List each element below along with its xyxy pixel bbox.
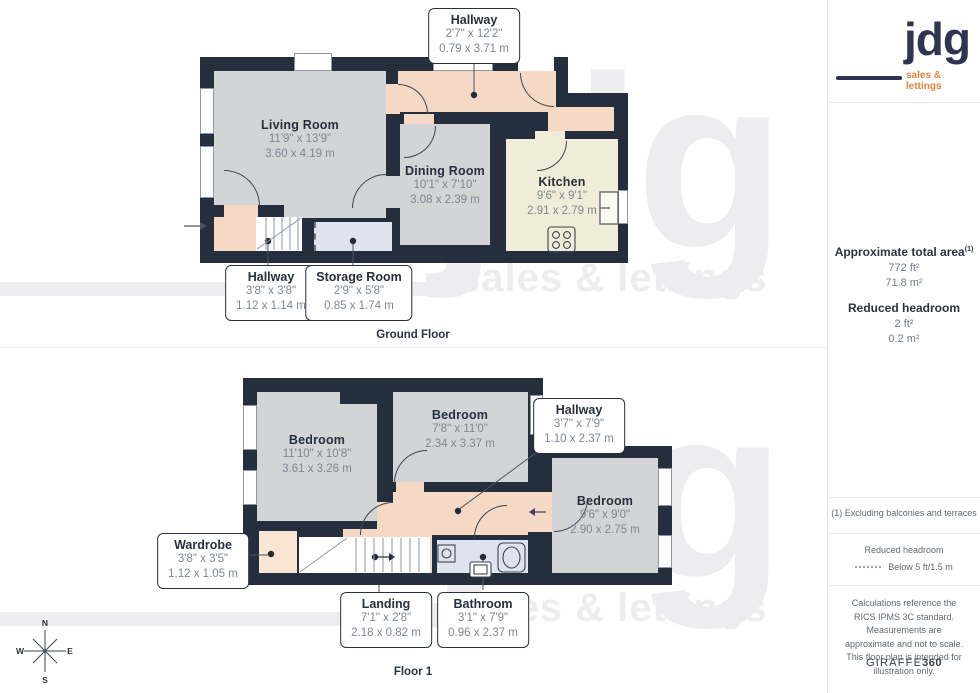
f1-window-bedroom-right-2 (658, 535, 672, 568)
room-name: Hallway (544, 403, 614, 417)
room-dims-ft: 2'7" x 12'2" (439, 27, 509, 42)
gf-door-gap-living-dining (386, 176, 402, 208)
room-dims-ft: 3'1" x 7'9" (448, 611, 518, 626)
f1-wall-notch (340, 392, 377, 404)
f1-callout-wardrobe: Wardrobe 3'8" x 3'5" 1.12 x 1.05 m (157, 533, 249, 589)
info-sidebar: jdg sales & lettings Approximate total a… (827, 0, 980, 693)
legend-value: Below 5 ft/1.5 m (888, 562, 953, 572)
reduced-headroom-title: Reduced headroom (828, 301, 980, 315)
plan-area: jdg sales & lettings jdg sales & letting… (0, 0, 827, 693)
total-area-title: Approximate total area(1) (828, 243, 980, 261)
gf-label-living-room: Living Room 11'9" x 13'9" 3.60 x 4.19 m (261, 118, 339, 162)
compass-s: S (42, 675, 48, 685)
jdg-logo-tagline: sales & lettings (906, 70, 974, 92)
sidebar-divider-3 (828, 533, 980, 534)
compass-e: E (67, 646, 73, 656)
gf-floor-hallway-kitchen-entry (548, 107, 614, 131)
floorplan-page: jdg sales & lettings jdg sales & letting… (0, 0, 980, 693)
giraffe360-number: 360 (922, 657, 942, 669)
f1-window-left-1 (243, 405, 257, 450)
room-name: Bedroom (282, 433, 352, 447)
total-area-m: 71.8 m² (828, 277, 980, 289)
f1-label-bedroom-right: Bedroom 9'6" x 9'0" 2.90 x 2.75 m (570, 494, 640, 538)
room-dims-ft: 7'1" x 2'8" (351, 611, 421, 626)
f1-callout-hallway: Hallway 3'7" x 7'9" 1.10 x 2.37 m (533, 398, 625, 454)
f1-stairs-area (299, 537, 430, 573)
gf-floor-storage-room (314, 222, 392, 251)
f1-floor-bathroom (437, 540, 528, 573)
f1-window-bedroom-right-1 (658, 468, 672, 506)
f1-door-gap-hall-bedroom-right (528, 492, 552, 532)
floor-section-divider (0, 347, 827, 348)
reduced-headroom-ft: 2 ft² (828, 318, 980, 330)
room-name: Wardrobe (168, 538, 238, 552)
giraffe360-brand: GIRAFFE360 (828, 657, 980, 669)
room-dims-ft: 3'7" x 7'9" (544, 417, 614, 432)
gf-window-kitchen-right (618, 190, 628, 224)
sidebar-divider-2 (828, 497, 980, 498)
room-name: Bedroom (425, 408, 495, 422)
room-dims-m: 3.61 x 3.26 m (282, 462, 352, 477)
room-name: Kitchen (527, 175, 597, 189)
room-name: Storage Room (316, 270, 401, 284)
legend-row: Below 5 ft/1.5 m (828, 562, 980, 572)
room-dims-m: 2.91 x 2.79 m (527, 204, 597, 219)
room-dims-ft: 10'1" x 7'10" (405, 178, 485, 193)
f1-label-bedroom-mid: Bedroom 7'8" x 11'0" 2.34 x 3.37 m (425, 408, 495, 452)
room-dims-m: 1.12 x 1.05 m (168, 567, 238, 582)
giraffe360-name: GIRAFFE (866, 657, 922, 669)
room-dims-ft: 7'8" x 11'0" (425, 422, 495, 437)
room-dims-m: 3.08 x 2.39 m (405, 193, 485, 208)
room-dims-m: 2.90 x 2.75 m (570, 523, 640, 538)
room-dims-ft: 9'6" x 9'0" (570, 508, 640, 523)
gf-label-dining-room: Dining Room 10'1" x 7'10" 3.08 x 2.39 m (405, 164, 485, 208)
gf-front-door-gap (518, 57, 554, 71)
compass-w: W (16, 646, 25, 656)
total-area-ft: 772 ft² (828, 262, 980, 274)
room-dims-m: 1.12 x 1.14 m (236, 299, 306, 314)
room-dims-m: 2.18 x 0.82 m (351, 626, 421, 641)
gf-callout-hallway-bottom: Hallway 3'8" x 3'8" 1.12 x 1.14 m (225, 265, 317, 321)
footnote-excluding: (1) Excluding balconies and terraces (828, 508, 980, 518)
total-area-title-text: Approximate total area (835, 245, 965, 259)
room-dims-m: 2.34 x 3.37 m (425, 437, 495, 452)
gf-bay-window-living (294, 53, 332, 71)
total-area-superscript: (1) (965, 246, 974, 253)
gf-door-gap-hall-dining (404, 114, 434, 124)
f1-callout-landing: Landing 7'1" x 2'8" 2.18 x 0.82 m (340, 592, 432, 648)
room-name: Landing (351, 597, 421, 611)
room-name: Dining Room (405, 164, 485, 178)
sidebar-divider-1 (828, 102, 980, 103)
gf-stairs-area (256, 217, 302, 251)
room-dims-ft: 3'8" x 3'5" (168, 552, 238, 567)
f1-window-left-2 (243, 470, 257, 505)
reduced-headroom-dotted-icon (855, 566, 881, 568)
f1-door-gap-bedroom-mid (396, 482, 424, 492)
room-dims-ft: 11'9" x 13'9" (261, 132, 339, 147)
gf-caption: Ground Floor (376, 329, 449, 341)
jdg-logo-text: jdg (904, 12, 970, 66)
jdg-logo: jdg sales & lettings (836, 12, 974, 92)
room-dims-m: 0.85 x 1.74 m (316, 299, 401, 314)
f1-label-bedroom-left: Bedroom 11'10" x 10'8" 3.61 x 3.26 m (282, 433, 352, 477)
gf-window-living-left-2 (200, 146, 214, 198)
legend-title: Reduced headroom (828, 545, 980, 555)
room-name: Hallway (439, 13, 509, 27)
gf-callout-storage-room: Storage Room 2'9" x 5'8" 0.85 x 1.74 m (305, 265, 412, 321)
room-dims-ft: 11'10" x 10'8" (282, 447, 352, 462)
compass-icon: N E S W (16, 616, 74, 686)
room-dims-ft: 9'6" x 9'1" (527, 189, 597, 204)
gf-callout-hallway-top: Hallway 2'7" x 12'2" 0.79 x 3.71 m (428, 8, 520, 64)
room-name: Living Room (261, 118, 339, 132)
room-name: Hallway (236, 270, 306, 284)
room-dims-m: 3.60 x 4.19 m (261, 147, 339, 162)
gf-door-gap-living-entry (224, 205, 258, 217)
gf-label-kitchen: Kitchen 9'6" x 9'1" 2.91 x 2.79 m (527, 175, 597, 219)
room-dims-m: 1.10 x 2.37 m (544, 432, 614, 447)
f1-caption: Floor 1 (394, 666, 432, 678)
room-dims-m: 0.79 x 3.71 m (439, 42, 509, 57)
room-name: Bedroom (570, 494, 640, 508)
f1-floor-wardrobe (259, 531, 297, 573)
room-name: Bathroom (448, 597, 518, 611)
reduced-headroom-m: 0.2 m² (828, 333, 980, 345)
room-dims-m: 0.96 x 2.37 m (448, 626, 518, 641)
room-dims-ft: 3'8" x 3'8" (236, 284, 306, 299)
room-dims-ft: 2'9" x 5'8" (316, 284, 401, 299)
gf-door-gap-hall-kitchen (535, 131, 565, 139)
sidebar-divider-4 (828, 585, 980, 586)
f1-callout-bathroom: Bathroom 3'1" x 7'9" 0.96 x 2.37 m (437, 592, 529, 648)
jdg-logo-underline (836, 76, 902, 80)
gf-window-living-left-1 (200, 88, 214, 134)
